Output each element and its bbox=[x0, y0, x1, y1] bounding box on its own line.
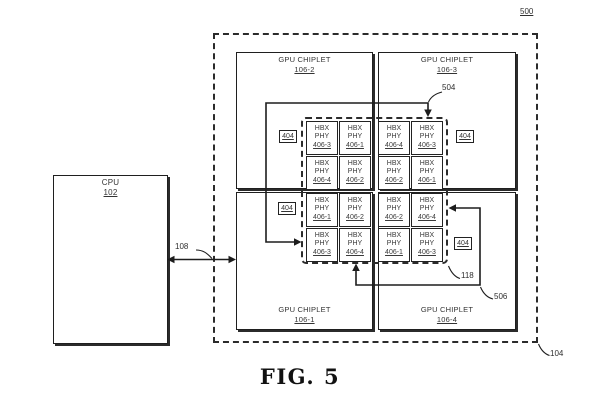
hbx-phy-block-406-4-r1c3: HBXPHY406-4 bbox=[378, 121, 410, 155]
phy-cell-text: 406-4 bbox=[418, 214, 436, 223]
hbx-phy-block-406-4-r2c1: HBXPHY406-4 bbox=[306, 156, 338, 190]
chiplet-ref: 106-1 bbox=[237, 315, 372, 325]
phy-cell-text: PHY bbox=[387, 240, 401, 249]
chiplet-title: GPU CHIPLET bbox=[379, 55, 515, 65]
ref-404-box-bottom-left: 404 bbox=[278, 202, 296, 215]
phy-cell-text: 406-1 bbox=[385, 249, 403, 258]
phy-cell-text: 406-2 bbox=[385, 177, 403, 186]
ref-404-text: 404 bbox=[459, 133, 471, 140]
ref-404-box-top-right: 404 bbox=[456, 130, 474, 143]
phy-cell-text: PHY bbox=[348, 205, 362, 214]
phy-cell-text: 406-2 bbox=[346, 214, 364, 223]
chiplet-ref: 106-4 bbox=[379, 315, 515, 325]
ref-504: 504 bbox=[442, 83, 455, 92]
phy-cell-text: 406-2 bbox=[346, 177, 364, 186]
phy-cell-text: HBX bbox=[315, 197, 329, 206]
phy-cell-text: HBX bbox=[315, 160, 329, 169]
phy-cell-text: 406-3 bbox=[418, 142, 436, 151]
ref-404-box-top-left: 404 bbox=[279, 130, 297, 143]
ref-108: 108 bbox=[175, 242, 188, 251]
phy-cell-text: PHY bbox=[387, 168, 401, 177]
hbx-phy-block-406-3-r1c1: HBXPHY406-3 bbox=[306, 121, 338, 155]
phy-cell-text: HBX bbox=[315, 125, 329, 134]
gpu-chiplet-106-3-label: GPU CHIPLET 106-3 bbox=[379, 55, 515, 75]
gpu-chiplet-106-1-label: GPU CHIPLET 106-1 bbox=[237, 305, 372, 325]
chiplet-title: GPU CHIPLET bbox=[237, 55, 372, 65]
hbx-phy-block-406-1-r3c1: HBXPHY406-1 bbox=[306, 193, 338, 227]
phy-cell-text: PHY bbox=[420, 205, 434, 214]
phy-cell-text: PHY bbox=[315, 168, 329, 177]
hbx-phy-block-406-4-r4c2: HBXPHY406-4 bbox=[339, 228, 371, 262]
cpu-label: CPU 102 bbox=[54, 178, 167, 198]
patent-figure-canvas: CPU 102 GPU CHIPLET 106-2 GPU CHIPLET 10… bbox=[0, 0, 600, 401]
phy-cell-text: HBX bbox=[420, 125, 434, 134]
phy-cell-text: 406-4 bbox=[346, 249, 364, 258]
phy-cell-text: 406-3 bbox=[313, 249, 331, 258]
phy-cell-text: PHY bbox=[420, 240, 434, 249]
leader-104 bbox=[539, 344, 550, 356]
phy-cell-text: HBX bbox=[348, 125, 362, 134]
phy-cell-text: HBX bbox=[348, 160, 362, 169]
hbx-phy-block-406-4-r3c4: HBXPHY406-4 bbox=[411, 193, 443, 227]
phy-cell-text: HBX bbox=[420, 160, 434, 169]
phy-cell-text: HBX bbox=[387, 125, 401, 134]
hbx-phy-block-406-3-r4c1: HBXPHY406-3 bbox=[306, 228, 338, 262]
phy-cell-text: 406-3 bbox=[313, 142, 331, 151]
phy-cell-text: 406-1 bbox=[313, 214, 331, 223]
hbx-phy-block-406-3-r4c4: HBXPHY406-3 bbox=[411, 228, 443, 262]
phy-cell-text: PHY bbox=[315, 205, 329, 214]
phy-cell-text: PHY bbox=[387, 133, 401, 142]
phy-cell-text: HBX bbox=[387, 232, 401, 241]
phy-cell-text: HBX bbox=[387, 197, 401, 206]
cpu-title: CPU bbox=[54, 178, 167, 188]
hbx-phy-block-406-2-r3c2: HBXPHY406-2 bbox=[339, 193, 371, 227]
figure-caption: FIG. 5 bbox=[230, 364, 370, 389]
phy-cell-text: 406-1 bbox=[346, 142, 364, 151]
phy-cell-text: 406-4 bbox=[385, 142, 403, 151]
ref-404-box-bottom-right: 404 bbox=[454, 237, 472, 250]
phy-cell-text: 406-4 bbox=[313, 177, 331, 186]
phy-cell-text: HBX bbox=[420, 232, 434, 241]
phy-cell-text: 406-1 bbox=[418, 177, 436, 186]
chiplet-title: GPU CHIPLET bbox=[379, 305, 515, 315]
phy-cell-text: HBX bbox=[348, 197, 362, 206]
hbx-phy-block-406-3-r1c4: HBXPHY406-3 bbox=[411, 121, 443, 155]
ref-404-text: 404 bbox=[282, 133, 294, 140]
phy-cell-text: 406-2 bbox=[385, 214, 403, 223]
phy-cell-text: PHY bbox=[420, 133, 434, 142]
hbx-phy-block-406-1-r1c2: HBXPHY406-1 bbox=[339, 121, 371, 155]
hbx-phy-block-406-2-r2c2: HBXPHY406-2 bbox=[339, 156, 371, 190]
chiplet-title: GPU CHIPLET bbox=[237, 305, 372, 315]
cpu-ref: 102 bbox=[54, 188, 167, 198]
phy-cell-text: HBX bbox=[387, 160, 401, 169]
chiplet-ref: 106-2 bbox=[237, 65, 372, 75]
phy-cell-text: HBX bbox=[348, 232, 362, 241]
chiplet-ref: 106-3 bbox=[379, 65, 515, 75]
cpu-box: CPU 102 bbox=[53, 175, 168, 344]
phy-cell-text: PHY bbox=[315, 240, 329, 249]
phy-cell-text: PHY bbox=[348, 133, 362, 142]
ref-500: 500 bbox=[520, 7, 533, 16]
hbx-phy-block-406-2-r2c3: HBXPHY406-2 bbox=[378, 156, 410, 190]
phy-cell-text: HBX bbox=[315, 232, 329, 241]
ref-118: 118 bbox=[461, 271, 474, 280]
phy-cell-text: PHY bbox=[315, 133, 329, 142]
ref-104: 104 bbox=[550, 349, 563, 358]
phy-cell-text: HBX bbox=[420, 197, 434, 206]
ref-404-text: 404 bbox=[281, 205, 293, 212]
ref-506: 506 bbox=[494, 292, 507, 301]
leader-108 bbox=[196, 250, 212, 259]
phy-cell-text: 406-3 bbox=[418, 249, 436, 258]
hbx-phy-block-406-2-r3c3: HBXPHY406-2 bbox=[378, 193, 410, 227]
phy-cell-text: PHY bbox=[348, 240, 362, 249]
phy-cell-text: PHY bbox=[387, 205, 401, 214]
gpu-chiplet-106-2-label: GPU CHIPLET 106-2 bbox=[237, 55, 372, 75]
ref-404-text: 404 bbox=[457, 240, 469, 247]
hbx-phy-block-406-1-r2c4: HBXPHY406-1 bbox=[411, 156, 443, 190]
phy-cell-text: PHY bbox=[348, 168, 362, 177]
hbx-phy-block-406-1-r4c3: HBXPHY406-1 bbox=[378, 228, 410, 262]
gpu-chiplet-106-4-label: GPU CHIPLET 106-4 bbox=[379, 305, 515, 325]
phy-cell-text: PHY bbox=[420, 168, 434, 177]
